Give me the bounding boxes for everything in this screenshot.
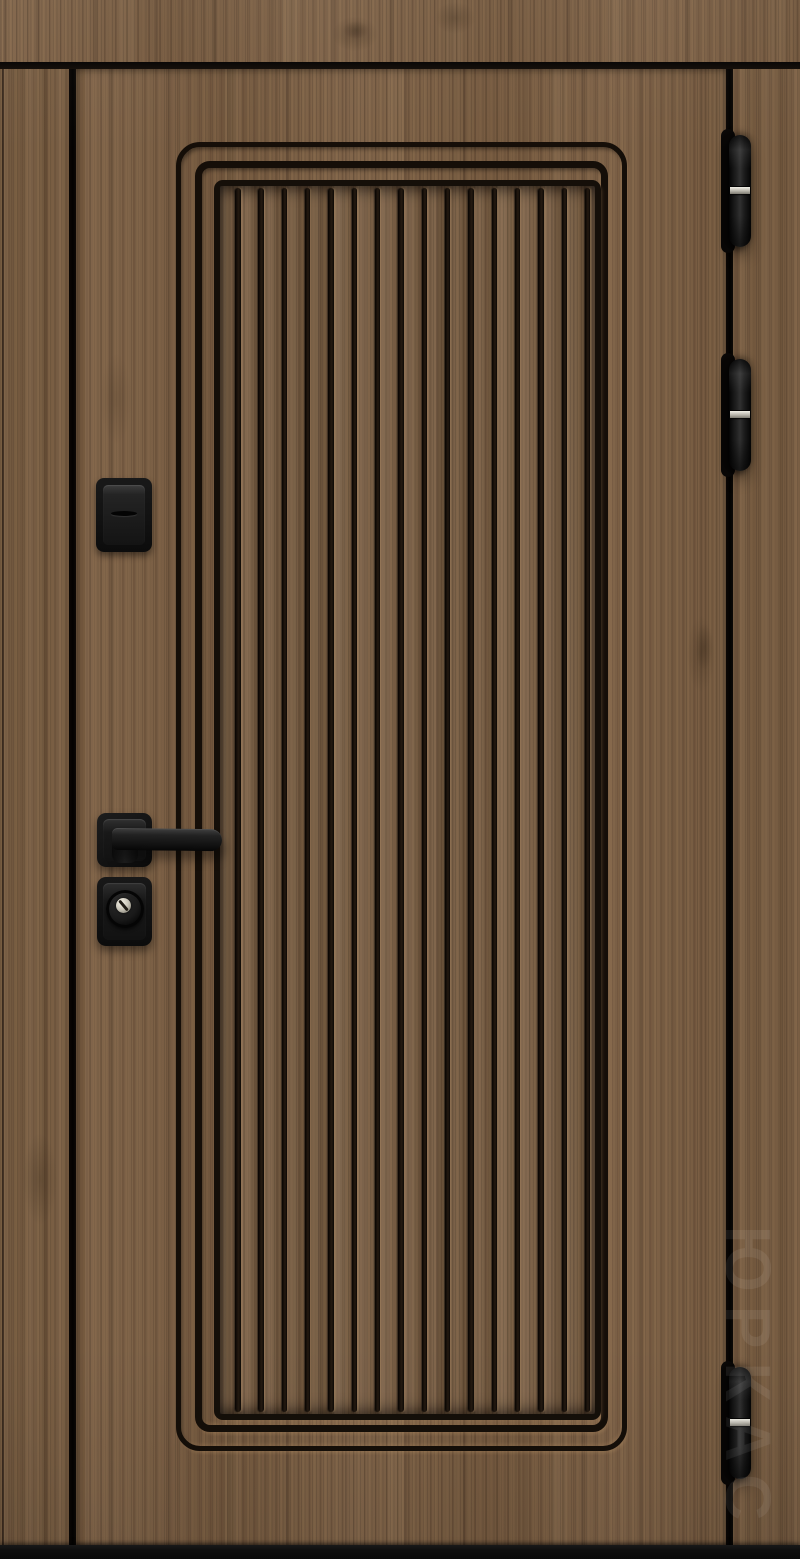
night-latch <box>96 478 152 552</box>
panel-slat-groove <box>492 188 498 1412</box>
wood-knots <box>0 69 69 1545</box>
cylinder-lock-escutcheon <box>97 877 152 946</box>
hinge-bearing-ring <box>730 411 750 418</box>
panel-slat-groove <box>282 188 288 1412</box>
panel-slat-groove <box>398 188 404 1412</box>
handle-lever <box>112 828 222 851</box>
panel-slat-groove <box>585 188 591 1412</box>
hinge-bearing-ring <box>730 1419 750 1426</box>
panel-slat-groove <box>422 188 428 1412</box>
panel-slat-groove <box>375 188 381 1412</box>
hinge-bearing-ring <box>730 187 750 194</box>
panel-slat-groove <box>305 188 311 1412</box>
hinge-bottom <box>729 1367 751 1479</box>
hinge-middle <box>729 359 751 471</box>
frame-top-gap <box>0 62 800 69</box>
panel-slat-groove <box>515 188 521 1412</box>
door-threshold <box>0 1545 800 1559</box>
door-gap-left <box>69 69 76 1545</box>
panel-slat-groove <box>258 188 264 1412</box>
panel-slat-groove <box>538 188 544 1412</box>
frame-header <box>0 0 800 62</box>
wood-knots <box>0 0 800 62</box>
door-photo: ЮРКАС <box>0 0 800 1559</box>
panel-slat-groove <box>328 188 334 1412</box>
door-leaf <box>76 69 726 1545</box>
hinge-top <box>729 135 751 247</box>
panel-slat-groove <box>445 188 451 1412</box>
frame-right-casing <box>733 69 800 1545</box>
frame-left-casing <box>0 69 69 1545</box>
door-gap-right <box>726 69 733 1545</box>
lock-cylinder <box>106 890 144 928</box>
key-slot <box>118 900 129 912</box>
panel-slat-groove <box>468 188 474 1412</box>
keyway <box>116 898 131 913</box>
night-latch-slot <box>111 511 137 516</box>
panel-slat-groove <box>562 188 568 1412</box>
panel-slat-field <box>214 180 601 1420</box>
panel-slat-groove <box>352 188 358 1412</box>
panel-slat-groove <box>235 188 241 1412</box>
